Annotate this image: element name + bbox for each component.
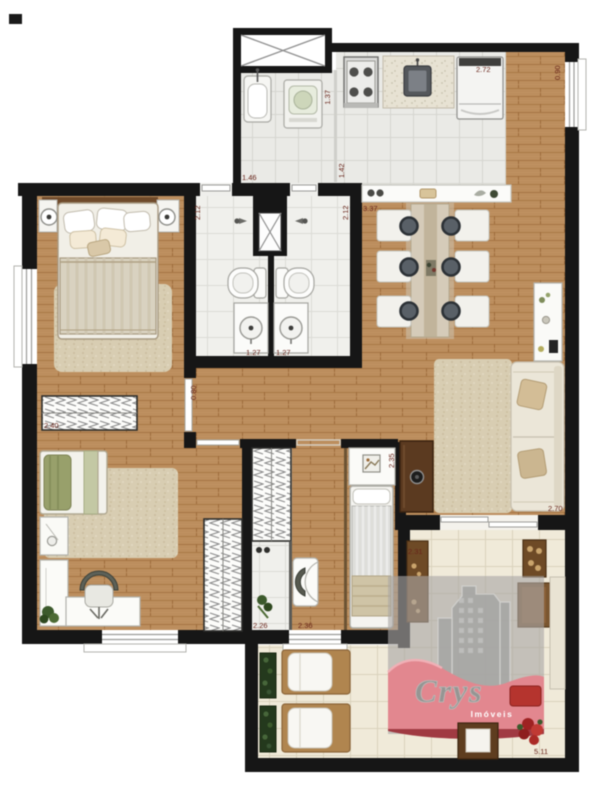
svg-text:0.90: 0.90 [553, 65, 562, 80]
svg-text:2.40: 2.40 [44, 421, 59, 430]
svg-text:1.37: 1.37 [323, 90, 332, 105]
svg-text:2.35: 2.35 [387, 453, 396, 468]
svg-text:2.70: 2.70 [548, 504, 563, 513]
svg-text:Imóveis: Imóveis [471, 709, 514, 719]
svg-text:5.11: 5.11 [534, 747, 548, 756]
svg-text:2.26: 2.26 [253, 621, 268, 630]
svg-text:2.36: 2.36 [298, 621, 313, 630]
svg-text:2.12: 2.12 [341, 205, 350, 220]
svg-text:3.37: 3.37 [363, 204, 378, 213]
svg-text:1.42: 1.42 [337, 163, 346, 178]
svg-text:1.27: 1.27 [276, 348, 291, 357]
svg-text:Crys: Crys [415, 674, 483, 710]
svg-text:2.31: 2.31 [408, 547, 423, 556]
svg-text:2.12: 2.12 [193, 205, 202, 220]
svg-text:0.80: 0.80 [189, 385, 198, 400]
svg-text:2.72: 2.72 [476, 65, 491, 74]
svg-text:1.46: 1.46 [242, 173, 257, 182]
svg-text:1.27: 1.27 [246, 348, 261, 357]
